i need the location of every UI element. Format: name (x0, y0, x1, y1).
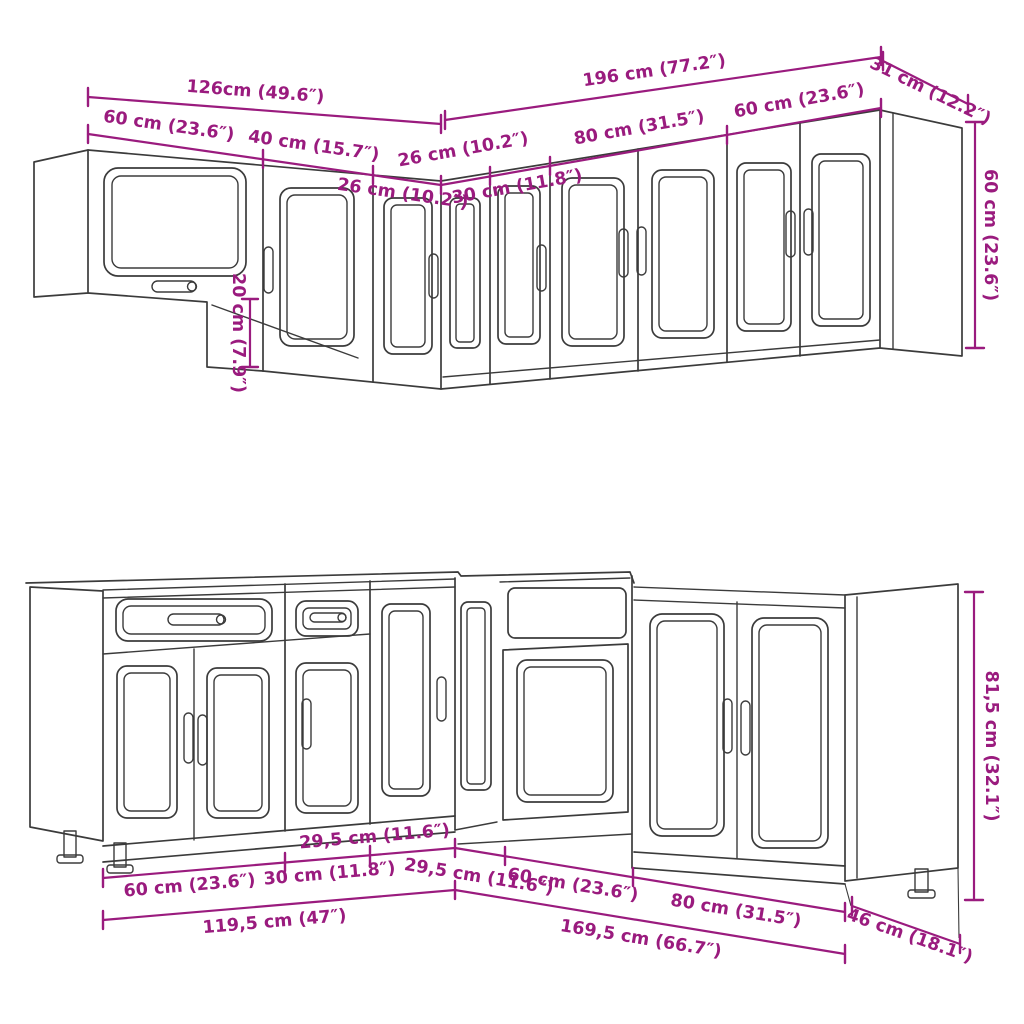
dim-base-seg-29-left: 29,5 cm (11.6″) (299, 821, 451, 854)
base-right-side-panel (845, 584, 958, 881)
false-drawer-front (508, 588, 626, 638)
wall-underside-band (443, 340, 880, 377)
door-panel-inner (744, 170, 784, 324)
wall-left-side-panel (34, 150, 88, 297)
door-panel (737, 163, 791, 331)
door-outline (503, 644, 628, 820)
door-panel-inner (303, 670, 351, 806)
drawer-front (296, 601, 358, 636)
door-panel-inner (287, 195, 347, 339)
bridge-handle-knob-icon (188, 282, 197, 291)
base-face-top-edge (103, 578, 845, 595)
wall-cabinet-60 (737, 154, 870, 331)
dim-wall-total-right: 196 cm (77.2″) (581, 51, 727, 91)
door-bottom-edge (455, 822, 497, 830)
dim-base-height: 81,5 cm (32.1″) (981, 671, 1001, 822)
door-panel-inner (214, 675, 262, 811)
wall-door-40 (264, 188, 354, 346)
drawer-front-inner (123, 606, 265, 634)
door-panel-inner (524, 667, 606, 795)
door-panel (450, 198, 480, 348)
door-panel-inner (389, 611, 423, 789)
door-panel (562, 178, 624, 346)
door-handle-icon (437, 677, 446, 721)
top-band (634, 600, 845, 608)
door-panel (650, 614, 724, 836)
glass-door-pane (112, 176, 238, 268)
door-panel-inner (467, 608, 485, 784)
dim-wall-height: 60 cm (23.6″) (980, 169, 1000, 301)
wall-cabinet-separators (263, 123, 800, 389)
door-handle-icon (429, 254, 438, 298)
door-handle-icon (198, 715, 207, 765)
dim-wall-depth-right: 31 cm (12.2″) (866, 54, 994, 130)
door-panel (752, 618, 828, 848)
dim-base-total-right: 169,5 cm (66.7″) (559, 916, 723, 962)
base-cabinet-30 (296, 601, 358, 813)
door-panel (117, 666, 177, 818)
door-handle-icon (264, 247, 273, 293)
base-dimension-lines (103, 592, 974, 954)
wall-bottom-edge (263, 348, 880, 389)
door-handle-icon (537, 245, 546, 291)
door-panel (296, 663, 358, 813)
base-left-side-panel (30, 587, 103, 841)
base-cabinet-29-corner (455, 602, 497, 830)
leg (114, 843, 126, 867)
door-panel-inner (505, 193, 533, 337)
door-panel (652, 170, 714, 338)
leg-foot (57, 855, 83, 863)
door-panel-inner (456, 204, 474, 342)
diagram-canvas: 126cm (49.6″) 196 cm (77.2″) 31 cm (12.2… (0, 0, 1024, 1024)
wall-door-30 (498, 186, 546, 344)
base-left-legs (57, 831, 133, 873)
door-panel-inner (124, 673, 170, 811)
dim-wall-bridge-gap: 20 cm (7.9″) (228, 273, 248, 393)
wall-door-26-right (450, 198, 480, 348)
cabinet-dimension-diagram: 126cm (49.6″) 196 cm (77.2″) 31 cm (12.2… (0, 0, 1024, 1024)
door-panel (461, 602, 491, 790)
glass-door-frame (104, 168, 246, 276)
base-corner-cabinet (458, 588, 632, 844)
leg-foot (908, 890, 935, 898)
door-panel-inner (759, 625, 821, 841)
dim-base-seg-80: 80 cm (31.5″) (669, 891, 803, 932)
dim-base-depth-right: 46 cm (18.1″) (844, 905, 975, 968)
dim-wall-total-left: 126cm (49.6″) (186, 77, 325, 108)
base-cabinet-80 (634, 600, 845, 884)
door-panel (280, 188, 354, 346)
door-panel-inner (819, 161, 863, 319)
door-panel (517, 660, 613, 802)
door-handle-icon (741, 701, 750, 755)
leg-foot (107, 865, 133, 873)
door-panel-inner (391, 205, 425, 347)
door-handle-icon (184, 713, 193, 763)
drawer-handle-knob-icon (338, 614, 346, 622)
door-panel (207, 668, 269, 818)
door-panel-inner (659, 177, 707, 331)
wall-door-26-left (384, 198, 438, 354)
door-panel-inner (657, 621, 717, 829)
door-panel-inner (569, 185, 617, 339)
corner-plinth-edge (458, 834, 632, 844)
wall-bridge-glass-door (104, 168, 246, 292)
plinth-edges (634, 852, 845, 884)
dim-wall-seg-26-right: 26 cm (10.2″) (396, 129, 530, 172)
dim-base-seg-60-right: 60 cm (23.6″) (506, 865, 640, 906)
door-panel (812, 154, 870, 326)
base-cabinet-29-left (382, 604, 446, 796)
drawer-handle-icon (168, 614, 224, 625)
drawer-separator (103, 634, 370, 654)
